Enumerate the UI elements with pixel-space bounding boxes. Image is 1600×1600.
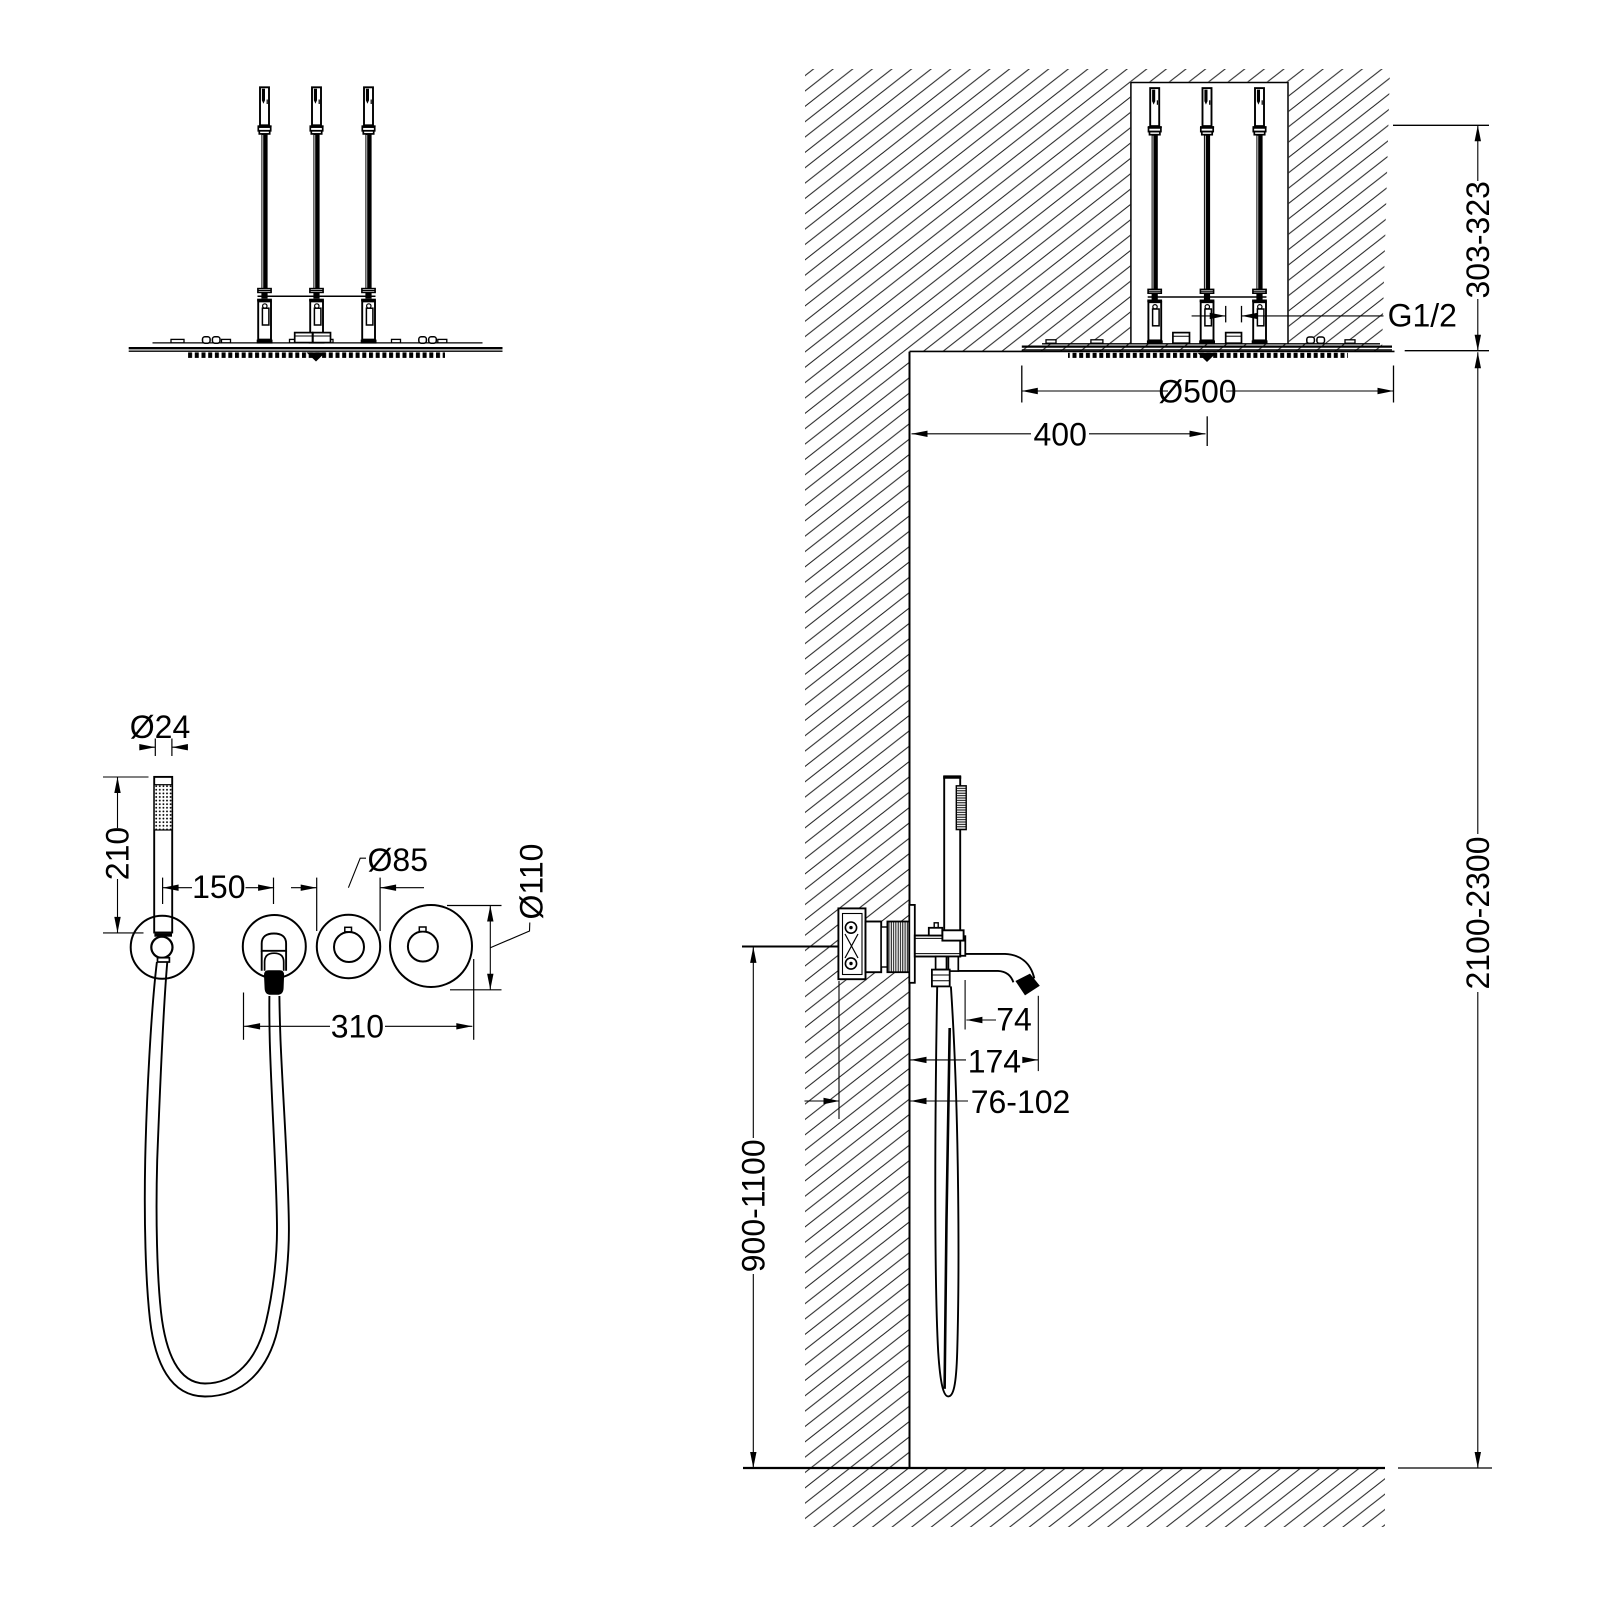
svg-text:Ø85: Ø85	[368, 842, 428, 878]
svg-text:310: 310	[331, 1009, 384, 1045]
svg-text:400: 400	[1034, 416, 1087, 452]
svg-text:Ø24: Ø24	[130, 709, 190, 745]
svg-text:Ø500: Ø500	[1158, 373, 1236, 409]
svg-text:150: 150	[192, 869, 245, 905]
svg-text:74: 74	[996, 1002, 1032, 1038]
svg-text:303-323: 303-323	[1460, 181, 1496, 298]
svg-text:2100-2300: 2100-2300	[1460, 836, 1496, 989]
svg-text:G1/2: G1/2	[1388, 298, 1457, 334]
svg-text:210: 210	[100, 827, 136, 880]
svg-text:76-102: 76-102	[971, 1084, 1071, 1120]
svg-text:900-1100: 900-1100	[735, 1139, 771, 1272]
svg-text:174: 174	[968, 1043, 1021, 1079]
svg-text:Ø110: Ø110	[514, 844, 550, 920]
